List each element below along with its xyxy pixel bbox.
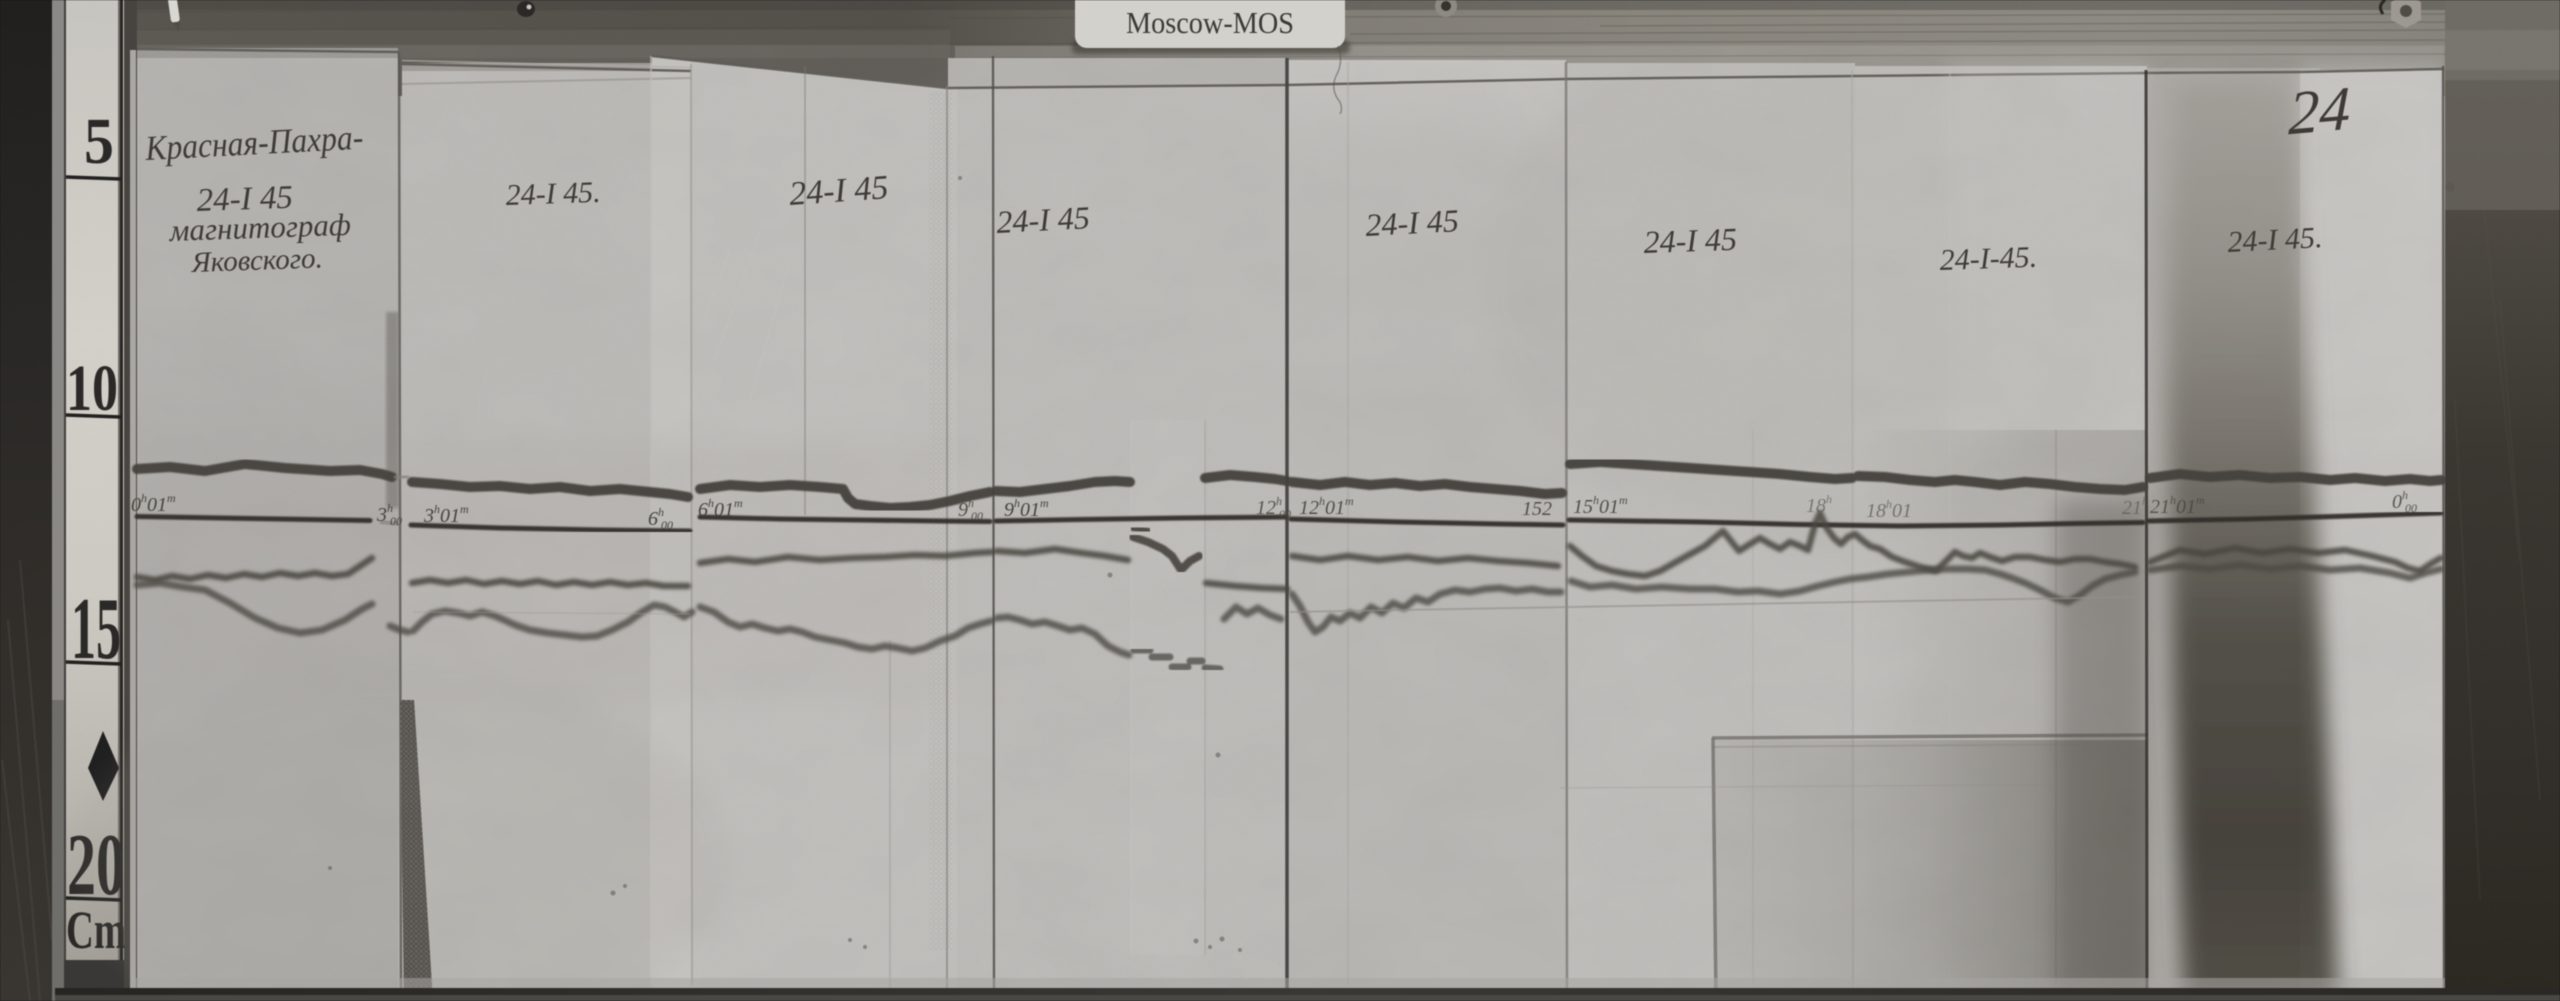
svg-text:24-I 45: 24-I 45 <box>1643 221 1738 260</box>
svg-text:24-I 45.: 24-I 45. <box>505 176 601 212</box>
svg-text:Яковского.: Яковского. <box>190 242 323 279</box>
svg-text:24-I 45.: 24-I 45. <box>2227 221 2324 259</box>
svg-text:24: 24 <box>2288 75 2351 149</box>
svg-text:24-I 45: 24-I 45 <box>1364 202 1459 243</box>
svg-text:24-I 45: 24-I 45 <box>995 199 1090 240</box>
svg-text:магнитограф: магнитограф <box>168 207 351 248</box>
svg-text:24-I-45.: 24-I-45. <box>1939 241 2038 277</box>
svg-text:24-I 45: 24-I 45 <box>788 169 889 213</box>
svg-text:152: 152 <box>1522 498 1552 520</box>
svg-text:Moscow-MOS: Moscow-MOS <box>1126 5 1294 40</box>
